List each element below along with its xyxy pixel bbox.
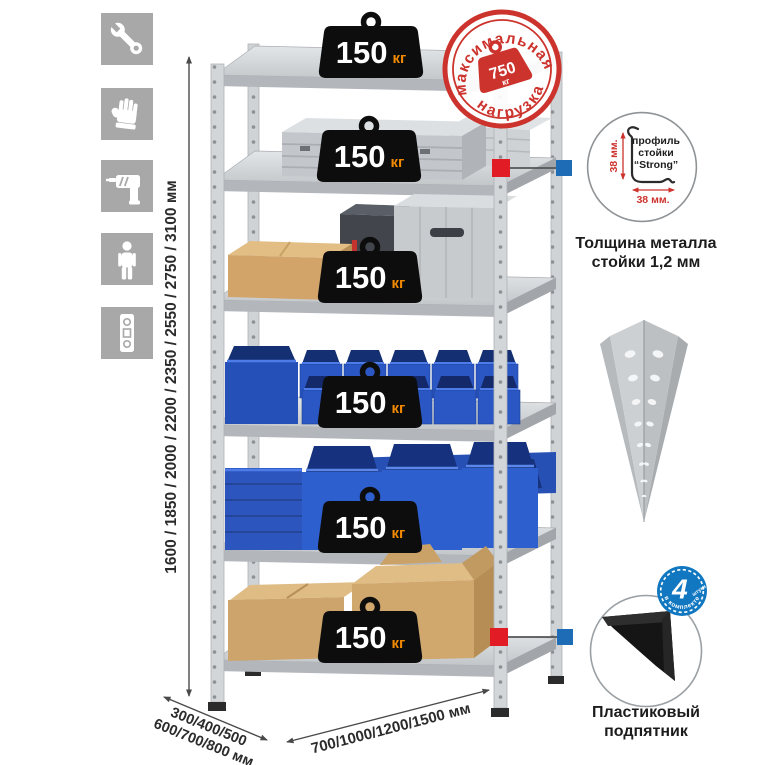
foot-caption-line2: подпятник — [604, 723, 688, 740]
post-front-left — [208, 64, 226, 711]
profile-detail-circle: 38 мм. 38 мм. профиль стойки “Strong” — [586, 111, 698, 223]
corner-post-image — [592, 312, 696, 526]
kit-quantity-badge: 4 штуки в комплекте — [656, 565, 708, 617]
svg-text:700/1000/1200/1500 мм: 700/1000/1200/1500 мм — [309, 700, 472, 758]
foot-caption: Пластиковый подпятник — [568, 703, 724, 741]
svg-text:стойки: стойки — [638, 147, 673, 159]
svg-text:38 мм.: 38 мм. — [608, 139, 620, 172]
svg-text:4: 4 — [671, 573, 688, 604]
svg-text:1600 / 1850 / 2000 / 2200 / 23: 1600 / 1850 / 2000 / 2200 / 2350 / 2550 … — [163, 180, 180, 574]
profile-caption-line1: Толщина металла — [575, 235, 716, 252]
svg-text:“Strong”: “Strong” — [634, 159, 678, 171]
width-dimension: 700/1000/1200/1500 мм — [287, 690, 489, 757]
post-back-right — [548, 52, 564, 684]
foot-caption-line1: Пластиковый — [592, 704, 700, 721]
height-dimension: 1600 / 1850 / 2000 / 2200 / 2350 / 2550 … — [163, 57, 189, 696]
svg-text:профиль: профиль — [632, 135, 680, 147]
load-badge-1: 150кг — [319, 15, 423, 79]
product-diagram: 150кг 150кг 150кг 150кг 150кг 150кг — [0, 0, 765, 765]
svg-text:38 мм.: 38 мм. — [636, 194, 669, 206]
profile-caption: Толщина металла стойки 1,2 мм — [568, 234, 724, 272]
profile-caption-line2: стойки 1,2 мм — [592, 254, 701, 271]
